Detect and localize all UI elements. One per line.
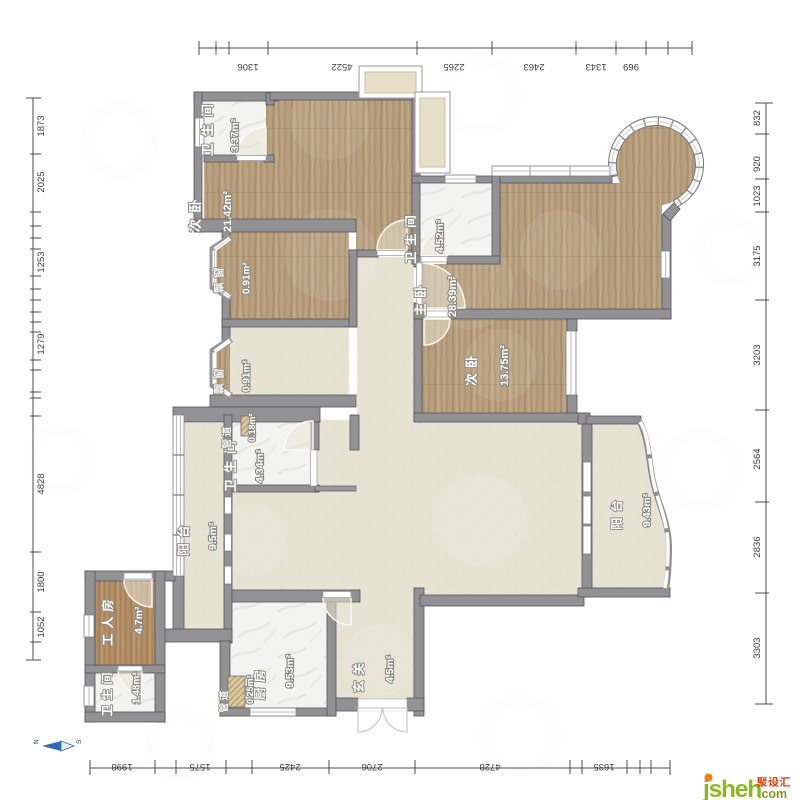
svg-text:4.7m²: 4.7m² (133, 606, 145, 634)
svg-text:21.42m²: 21.42m² (222, 191, 234, 232)
svg-text:0.18m²: 0.18m² (247, 413, 257, 442)
svg-text:1575: 1575 (189, 761, 210, 772)
svg-text:1052: 1052 (36, 616, 47, 637)
svg-text:1873: 1873 (36, 115, 47, 136)
svg-text:28.39m²: 28.39m² (447, 276, 459, 317)
svg-text:4522: 4522 (331, 61, 352, 72)
svg-text:2706: 2706 (361, 761, 382, 772)
svg-text:9.53m²: 9.53m² (284, 654, 296, 688)
svg-text:1306: 1306 (237, 61, 258, 72)
svg-text:.com: .com (758, 787, 787, 800)
svg-text:969: 969 (623, 61, 639, 72)
svg-text:4.34m²: 4.34m² (254, 449, 266, 483)
svg-text:0.25m²: 0.25m² (245, 675, 255, 704)
svg-text:1635: 1635 (593, 761, 614, 772)
svg-text:S: S (76, 739, 83, 744)
svg-text:2564: 2564 (752, 448, 763, 469)
svg-text:0.91m²: 0.91m² (242, 262, 253, 294)
svg-text:4828: 4828 (36, 473, 47, 494)
svg-text:2836: 2836 (752, 536, 763, 557)
svg-text:N: N (33, 739, 40, 744)
svg-text:920: 920 (752, 156, 763, 172)
svg-text:1253: 1253 (36, 251, 47, 272)
svg-text:2425: 2425 (279, 761, 300, 772)
svg-text:3175: 3175 (752, 245, 763, 266)
svg-text:9.5m²: 9.5m² (207, 522, 219, 550)
svg-text:1998: 1998 (111, 761, 132, 772)
svg-text:4.52m²: 4.52m² (434, 219, 446, 253)
svg-text:3.37m²: 3.37m² (229, 118, 241, 152)
svg-text:2265: 2265 (443, 61, 464, 72)
svg-text:9.43m²: 9.43m² (641, 493, 653, 527)
svg-text:1023: 1023 (752, 185, 763, 206)
svg-text:0.91m²: 0.91m² (242, 360, 253, 392)
svg-text:1.48m²: 1.48m² (132, 672, 143, 704)
svg-text:1279: 1279 (36, 333, 47, 354)
svg-text:4.5m²: 4.5m² (384, 655, 396, 683)
svg-text:832: 832 (752, 110, 763, 126)
svg-text:1343: 1343 (585, 61, 606, 72)
svg-text:3303: 3303 (752, 637, 763, 658)
svg-text:4728: 4728 (479, 761, 500, 772)
svg-text:3203: 3203 (752, 344, 763, 365)
svg-text:13.75m²: 13.75m² (499, 345, 511, 386)
svg-text:2025: 2025 (36, 171, 47, 192)
svg-text:1800: 1800 (36, 571, 47, 592)
svg-text:2463: 2463 (523, 61, 544, 72)
